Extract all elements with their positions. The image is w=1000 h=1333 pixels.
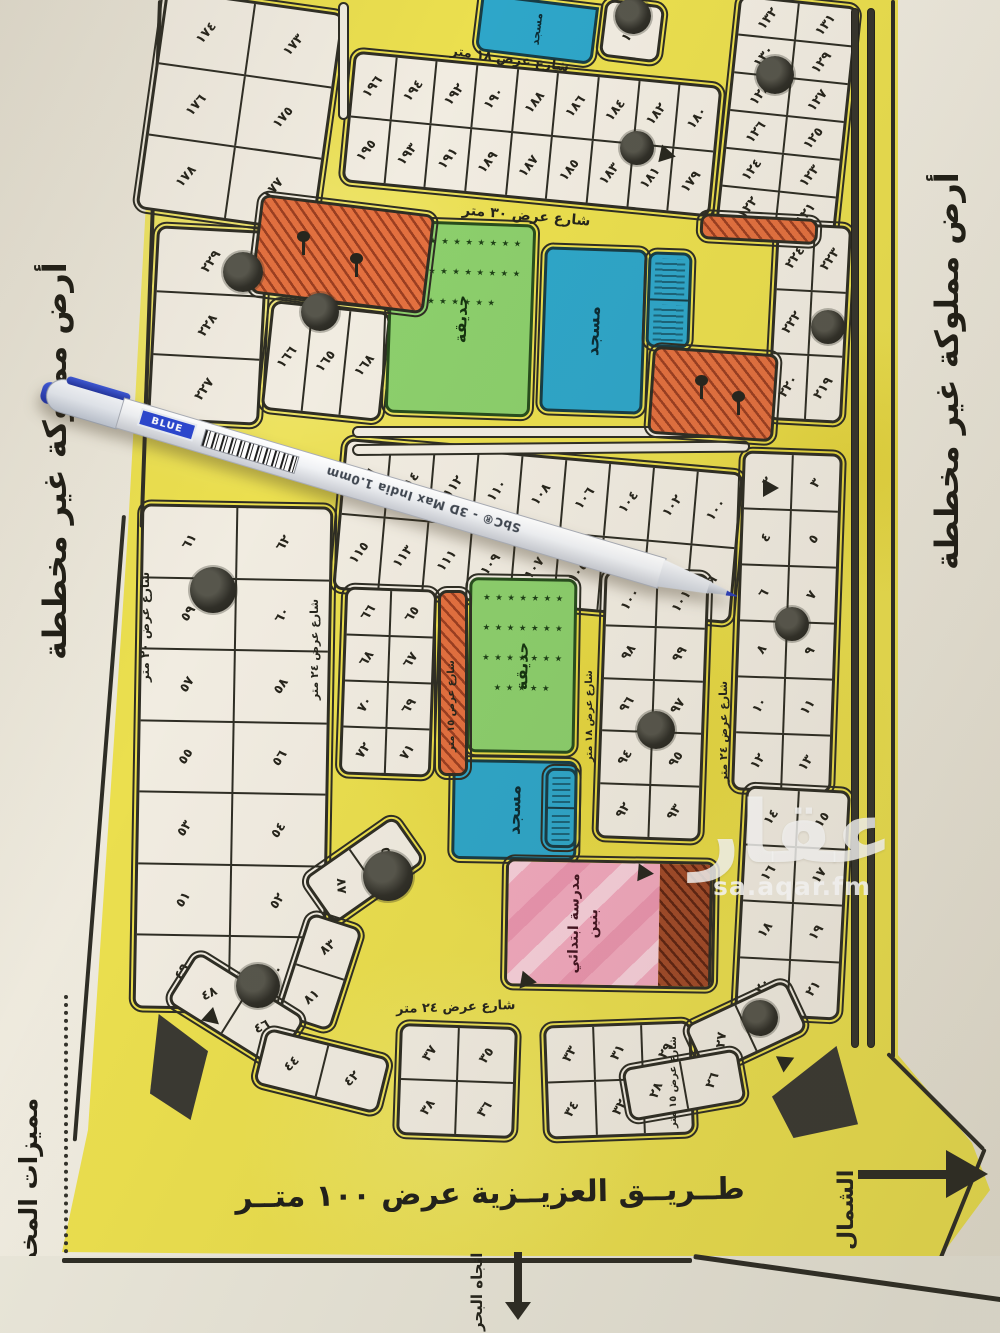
plot-number: ٢١٩	[811, 374, 837, 402]
plot-number: ١٥	[811, 809, 832, 831]
sea-arrow-shaft	[514, 1252, 522, 1304]
street-label: شارع عرض ٢٤ متر	[717, 681, 730, 782]
plot-number: ٧١	[397, 741, 418, 763]
paper-below-road	[0, 1256, 1000, 1333]
plot: ٣٨	[399, 1080, 456, 1134]
plot-number: ٤٤	[281, 1053, 303, 1075]
north-label: الشمال	[834, 1170, 859, 1250]
plot: ٢٢٢	[773, 290, 810, 354]
plot: ١٢	[734, 733, 782, 789]
tree-circle	[742, 1000, 778, 1036]
plot: ٩٩	[652, 628, 704, 681]
plot-number: ٥٣	[174, 818, 195, 839]
plot-number: ٢٢٣	[818, 245, 844, 273]
plot: ٥١	[137, 864, 230, 935]
plot: ١٨٦	[551, 73, 597, 139]
plot: ١٨٠	[673, 85, 719, 151]
street-label: شارع عرض ١٨ متر	[584, 670, 595, 762]
plot: ١٣٢	[738, 0, 797, 39]
plot-number: ١٨٢	[643, 100, 669, 128]
plot-number: ١٠٦	[572, 484, 598, 512]
side-label-right: أرض مملوكة غير مخططة	[928, 172, 966, 570]
school-label: مدرسة ابتدائي بنين	[564, 864, 604, 983]
plot: ٥٦	[231, 723, 326, 794]
plot-number: ٢٢٩	[198, 248, 224, 276]
plot-number: ١٧٩	[678, 167, 704, 195]
plot-number: ١٢٣	[797, 162, 823, 190]
plot-number: ٦٥	[402, 603, 423, 625]
plot-number: ٥٦	[269, 748, 290, 769]
plot-number: ٢٢٧	[192, 375, 218, 403]
plot: ٩٣	[647, 786, 699, 839]
plot-number: ١٨٨	[522, 88, 548, 116]
plot-number: ٢٨	[646, 1080, 666, 1100]
plot: ١٥	[795, 791, 848, 848]
plot-number: ٩٤	[615, 747, 636, 769]
plot-number: ١٧	[808, 865, 829, 887]
plot: ٦١	[143, 506, 236, 577]
plot: ١٠٤	[603, 464, 653, 540]
plot-number: ٢٦	[702, 1070, 722, 1090]
plot: ١٤	[746, 789, 797, 846]
plot-number: ١٩٥	[354, 136, 380, 164]
plot-number: ٦١	[179, 531, 200, 552]
plot-block-park-right: ١٠٠١٠١٩٨٩٩٩٦٩٧٩٤٩٥٩٢٩٣	[595, 570, 709, 842]
plot-number: ٢٧	[713, 1031, 730, 1049]
side-label-left: أرض مملوكة غير مخططة	[36, 262, 74, 660]
commercial-plot	[250, 194, 436, 315]
plot: ١٧٥	[234, 76, 331, 158]
plot-number: ٦٧	[400, 649, 421, 671]
plot: ٣٥	[456, 1028, 515, 1082]
utility-cell	[547, 809, 574, 845]
plot-block-bottom-inner-left: ٣٧٣٥٣٨٣٦	[396, 1023, 518, 1139]
plot-number: ١٠٤	[616, 488, 642, 516]
plot: ٣	[790, 455, 840, 511]
tree-circle	[637, 711, 675, 749]
plot-number: ١٤	[761, 806, 782, 828]
plot-number: ٢٢٤	[782, 243, 808, 271]
street-label: شارع عرض ١٥ متر	[446, 660, 457, 752]
plot-number: ١٣	[795, 752, 816, 774]
tree-circle	[756, 56, 794, 94]
plot-number: ٩	[802, 643, 819, 658]
plot: ١٢٥	[782, 117, 843, 159]
plot-number: ١٢٧	[805, 86, 831, 114]
plot-number: ٩٦	[617, 694, 638, 716]
plot-number: ١٣١	[813, 11, 839, 39]
plot: ٣٤	[548, 1082, 596, 1137]
plot: ٥٤	[230, 794, 325, 865]
plot-number: ٣٤	[562, 1099, 583, 1120]
plot-number: ٣	[807, 475, 824, 490]
pen-nib	[725, 590, 738, 600]
plot-number: ٦	[756, 586, 773, 601]
plot-number: ٥٢	[267, 891, 288, 912]
plot: ٧٢	[342, 727, 386, 772]
plot-number: ٤	[758, 530, 775, 545]
plot-number: ١٩٤	[400, 76, 426, 104]
plot: ١٨٩	[464, 129, 510, 195]
plot-number: ٦٢	[273, 533, 294, 554]
plot-number: ١٩٠	[481, 84, 507, 112]
pen-taper	[656, 560, 714, 602]
plot-number: ١٦٨	[351, 351, 377, 379]
plot: ١٩٦	[351, 54, 395, 119]
plot: ١٩	[789, 904, 842, 961]
tree-circle	[223, 252, 263, 292]
plot-number: ٢٢٠	[775, 373, 801, 401]
tree-circle	[236, 964, 280, 1008]
plot-block-top-right: ١٣٢١٣١١٣٠١٢٩١٢٨١٢٧١٢٦١٢٥١٢٤١٢٣١٢٢١٢١	[715, 0, 859, 238]
plot: ١٩٢	[430, 61, 476, 127]
plot-number: ١٨٧	[516, 152, 542, 180]
plot-number: ٥	[805, 531, 822, 546]
plot-number: ٣٨	[417, 1096, 438, 1118]
plot: ١١٣	[377, 518, 427, 594]
plot-block-inner-small: ٦٦٦٥٦٨٦٧٧٠٦٩٧٢٧١	[339, 586, 438, 777]
sea-arrow-icon	[505, 1302, 531, 1320]
plot-number: ٧٠	[355, 693, 376, 715]
road-edge-line	[62, 1258, 692, 1263]
plot-number: ١٣٢	[755, 4, 781, 32]
plot-number: ٣٣	[560, 1044, 581, 1065]
tree-symbol	[355, 262, 358, 277]
plot: ٥٧	[141, 650, 234, 721]
plot: ١٠	[736, 677, 784, 733]
plot-number: ٣٧	[419, 1042, 440, 1064]
tree-circle	[363, 851, 413, 901]
street-label: شارع عرض ٢٤ متر	[308, 599, 321, 700]
plot-number: ٤٨	[199, 983, 220, 1003]
plot: ١٧	[792, 848, 845, 905]
map-boundary-line	[891, 0, 895, 1058]
plot-number: ١٨٥	[556, 156, 582, 184]
plot-block-top-left: ١٧٤١٧٣١٧٦١٧٥١٧٨١٧٧	[135, 0, 344, 233]
plot-number: ٨١	[301, 986, 323, 1008]
plot-number: ١٢	[747, 750, 768, 772]
plot: ٢٢٨	[153, 292, 262, 359]
plot-number: ١٨٤	[603, 96, 629, 124]
plot-number: ٩٧	[667, 696, 688, 718]
street-label: شارع عرض ١٥ متر	[668, 1036, 679, 1128]
tree-circle	[811, 310, 845, 344]
road-median	[867, 8, 875, 1048]
plot-number: ١٦	[758, 863, 779, 885]
plot: ٤	[742, 509, 790, 565]
plot: ٩٢	[598, 784, 648, 836]
plot: ٦٦	[347, 590, 391, 635]
plot-number: ١٦٥	[313, 347, 339, 375]
plot-number: ١٩٢	[441, 80, 467, 108]
plot-number: ١٩٦	[360, 73, 386, 101]
plot: ١٧٦	[149, 64, 244, 146]
entrance-marker	[520, 971, 539, 992]
school: مدرسة ابتدائي بنين	[504, 858, 716, 990]
plot-number: ١٠٢	[660, 492, 686, 520]
plot-number: ١٨٦	[562, 92, 588, 120]
tree-symbol	[302, 240, 305, 255]
road-median	[851, 8, 859, 1048]
plot: ١٢٦	[726, 111, 785, 153]
plot: ١٣	[780, 735, 830, 791]
entrance-marker	[763, 479, 779, 497]
north-arrow-icon	[946, 1150, 988, 1198]
plot-number: ٨٣	[317, 936, 339, 958]
plot-number: ٢١	[803, 978, 824, 1000]
tree-circle	[190, 567, 236, 613]
plot-number: ١٢٥	[801, 124, 827, 152]
plot-number: ١٩	[806, 922, 827, 944]
utility-cell	[548, 771, 575, 809]
plot-number: ٩٢	[613, 800, 634, 822]
plot-number: ١٦٦	[274, 343, 300, 371]
plot-number: ١١١	[434, 546, 460, 574]
plot-number: ١٧٥	[270, 103, 297, 131]
plot: ١٠٢	[647, 468, 697, 544]
plot: ٣٧	[401, 1026, 458, 1080]
plot: ٣٣	[546, 1027, 594, 1082]
plot-number: ٥٨	[271, 676, 292, 697]
plot: ٥٣	[138, 793, 231, 864]
entrance-marker	[637, 863, 655, 882]
plot-number: ١٢٩	[809, 48, 835, 76]
plot: ٦٨	[345, 636, 389, 681]
pen-metal-tip	[706, 580, 729, 599]
utility-cell	[648, 300, 688, 345]
plot-number: ٩٥	[665, 749, 686, 771]
plot-number: ٣١	[608, 1042, 629, 1063]
road-median	[338, 2, 349, 120]
plot-number: ١١٥	[346, 538, 372, 566]
plot-number: ١٧٦	[183, 91, 210, 119]
sea-direction-label: اتجاه البحر	[468, 1253, 486, 1331]
plot: ١٨٨	[511, 69, 557, 135]
plot: ٦٧	[387, 637, 433, 683]
plot: ٦٩	[385, 683, 431, 729]
plot-number: ١٨	[755, 919, 776, 941]
plot: ١٩١	[424, 125, 470, 191]
plot-number: ٦٩	[399, 695, 420, 717]
plot-number: ١٠٠	[703, 495, 729, 523]
plot-number: ١٨٩	[475, 148, 501, 176]
plot-number: ٦٦	[358, 601, 379, 623]
plot: ٧١	[384, 729, 430, 775]
plot: ١٢٩	[790, 41, 851, 83]
plot: ١٢٣	[778, 155, 839, 197]
plot: ٢١٩	[803, 356, 842, 420]
plot: ١٨٥	[545, 137, 591, 203]
plot-number: ٢٢٢	[779, 308, 805, 336]
plot: ٩٨	[604, 626, 654, 678]
plot-number: ١٢٦	[743, 118, 769, 146]
plot: ١٩٠	[470, 65, 516, 131]
plot: ١٩٣	[383, 121, 429, 187]
plot-number: ٨٧	[334, 877, 350, 894]
commercial-plot	[647, 346, 779, 443]
plot-number: ٦٨	[356, 647, 377, 669]
plot-number: ٧	[804, 587, 821, 602]
plot: ٥٥	[139, 721, 232, 792]
plot-number: ١٧٨	[173, 163, 200, 191]
plot-number: ١٧٣	[280, 31, 307, 59]
street-label: شارع عرض ٢٠ متر	[138, 572, 152, 682]
plot-number: ٣٦	[474, 1098, 495, 1120]
plot: ١٩٤	[389, 58, 435, 124]
plot-number: ٩٨	[618, 642, 639, 664]
subdivision-map-photo: ١٧٤١٧٣١٧٦١٧٥١٧٨١٧٧١٩٦١٩٤١٩٢١٩٠١٨٨١٨٦١٨٤١…	[0, 0, 1000, 1333]
plot: ١١	[782, 679, 832, 735]
plot-number: ١٠٩	[478, 550, 504, 578]
plot: ١٧٨	[139, 136, 234, 218]
plot: ١١٥	[335, 515, 383, 590]
plot-number: ١٧٤	[193, 19, 220, 47]
park: ٭ ٭ ٭ ٭ ٭ ٭ ٭ ٭ ٭ ٭ ٭ ٭ ٭ ٭ ٭ ٭ ٭ ٭ ٭ ٭ …	[466, 577, 577, 754]
park-label: حديقة	[512, 641, 532, 689]
mosque-label: مسجد	[529, 12, 546, 46]
plot: ١٦	[743, 845, 794, 902]
plot-number: ٨	[754, 642, 771, 657]
plot-block-school-right: ١٤١٥١٦١٧١٨١٩٢٠٢١	[734, 785, 851, 1020]
plot-number: ٩٣	[663, 802, 684, 824]
plot-number: ٢٢٨	[195, 311, 221, 339]
plot-number: ٥٧	[177, 674, 198, 695]
mosque-label: مسجد	[504, 785, 525, 835]
plot: ٥	[788, 511, 838, 567]
plot: ١٠٠	[691, 472, 741, 548]
mosque: مسجد	[539, 246, 648, 414]
plot: ٦٥	[389, 591, 435, 637]
utility-plot	[645, 251, 692, 348]
plot: ١٨٧	[505, 133, 551, 199]
plot-number: ٥٥	[175, 746, 196, 767]
plot-number: ١٠٨	[528, 480, 554, 508]
tree-circle	[620, 131, 654, 165]
plot: ٢٦	[679, 1052, 743, 1109]
school-yard-strip	[658, 864, 713, 987]
plot-number: ١١٣	[390, 542, 416, 570]
plot-number: ١٢٤	[739, 156, 765, 184]
plot-number: ٥١	[173, 889, 194, 910]
plot: ١٨	[740, 901, 791, 958]
tree-symbol	[737, 400, 740, 415]
plot-number: ٤٢	[341, 1068, 363, 1090]
plot: ١٢٤	[722, 149, 781, 191]
plot-number: ٥٤	[268, 819, 289, 840]
plot-number: ١٨٣	[597, 160, 623, 188]
plot: ١٧٣	[244, 4, 341, 86]
plot: ٤٢	[315, 1046, 388, 1111]
utility-cell	[650, 254, 690, 301]
tree-circle	[301, 293, 339, 331]
plot-number: ١٩٣	[394, 140, 420, 168]
tree-symbol	[700, 384, 703, 399]
plot: ٣٦	[454, 1082, 513, 1136]
plot-number: ٣٥	[476, 1044, 497, 1066]
plot-number: ١٨٠	[684, 104, 710, 132]
plot: ١٣١	[794, 4, 855, 46]
plot-number: ١٨١	[637, 164, 663, 192]
mosque-label: مسجد	[583, 305, 605, 356]
plot-number: ٧٢	[353, 739, 374, 761]
plot-number: ١١	[797, 696, 818, 718]
plot: ١٧٤	[159, 0, 254, 74]
plot-number: ٩٩	[669, 643, 690, 665]
plot-number: ١٠	[749, 694, 770, 716]
plot: ٧٠	[343, 681, 387, 726]
north-arrow-shaft	[858, 1170, 953, 1179]
tree-circle	[775, 607, 809, 641]
park-label: حديقة	[450, 294, 471, 343]
utility-plot	[544, 768, 577, 849]
plot: ١٩٥	[345, 118, 389, 183]
plot: ١٢٧	[786, 79, 847, 121]
plot-number: ١٩١	[435, 144, 461, 172]
plot-number: ٦٠	[272, 604, 293, 625]
plot: ٦٢	[235, 508, 330, 579]
